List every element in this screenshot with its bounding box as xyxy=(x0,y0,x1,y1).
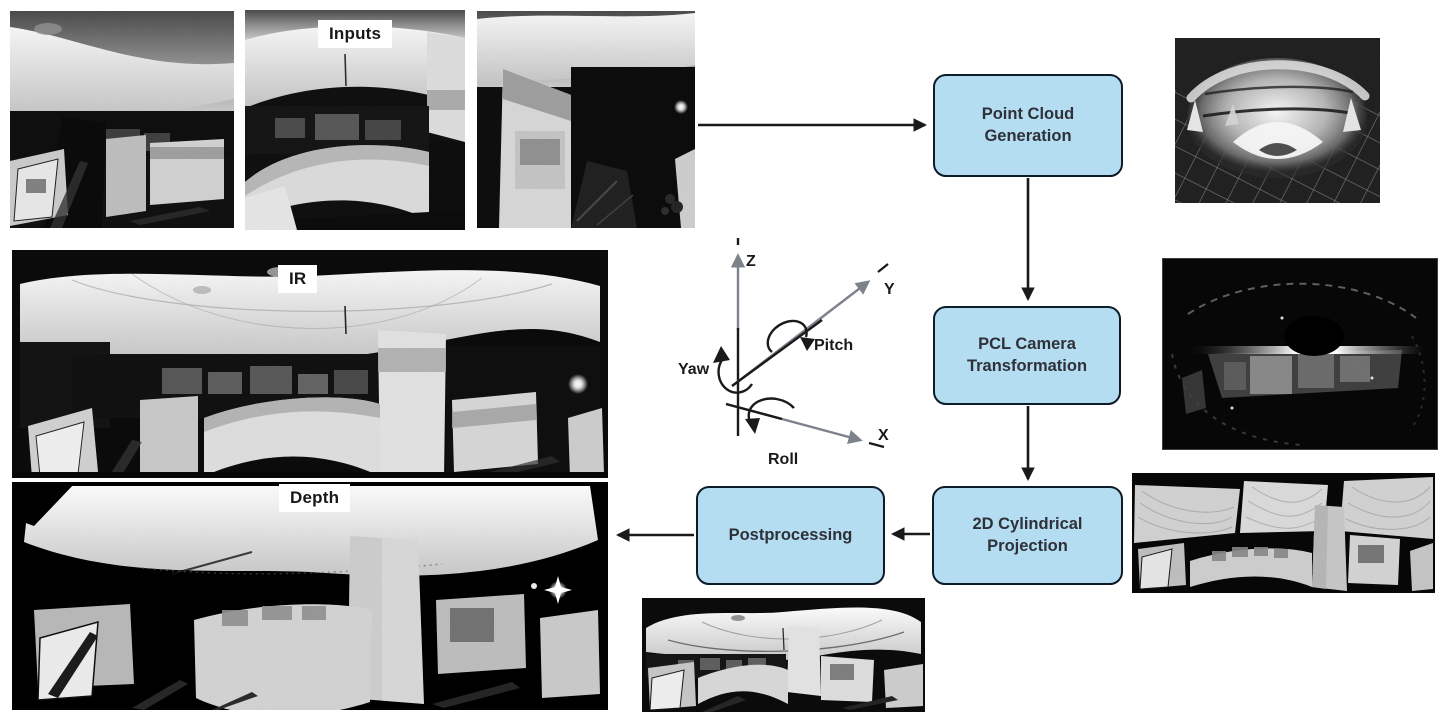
cylindrical-projection-pano xyxy=(1132,473,1435,593)
flow-node-pcl-camera-transformation: PCL Camera Transformation xyxy=(933,306,1121,405)
pitch-label: Pitch xyxy=(814,337,853,354)
ir-input-photo-3 xyxy=(477,11,695,228)
postprocessed-pano xyxy=(642,598,925,712)
flow-node-point-cloud-generation: Point Cloud Generation xyxy=(933,74,1123,177)
roll-label: Roll xyxy=(768,451,798,468)
x-axis-label: X xyxy=(878,427,889,444)
pitch-arrow xyxy=(768,321,815,352)
z-axis-label: Z xyxy=(746,253,756,270)
depth-label: Depth xyxy=(279,484,350,512)
inputs-label: Inputs xyxy=(318,20,392,48)
pcl-camera-view xyxy=(1162,258,1438,450)
ir-input-photo-1 xyxy=(10,11,234,228)
flow-node-label: Postprocessing xyxy=(729,525,853,546)
flow-node-postprocessing: Postprocessing xyxy=(696,486,885,585)
yaw-label: Yaw xyxy=(678,361,710,378)
depth-panorama xyxy=(12,482,608,710)
flow-node-label: 2D Cylindrical Projection xyxy=(950,514,1105,557)
pipeline-figure: Inputs xyxy=(0,0,1442,716)
flow-node-label: Point Cloud Generation xyxy=(951,104,1105,147)
y-axis xyxy=(732,264,888,386)
y-axis-label: Y xyxy=(884,281,895,298)
point-cloud-render xyxy=(1175,38,1380,203)
flow-node-label: PCL Camera Transformation xyxy=(951,334,1103,377)
axes-diagram: Z Y X Yaw Pitch Roll xyxy=(672,238,922,482)
ir-label: IR xyxy=(278,265,317,293)
flow-node-2d-cylindrical-projection: 2D Cylindrical Projection xyxy=(932,486,1123,585)
